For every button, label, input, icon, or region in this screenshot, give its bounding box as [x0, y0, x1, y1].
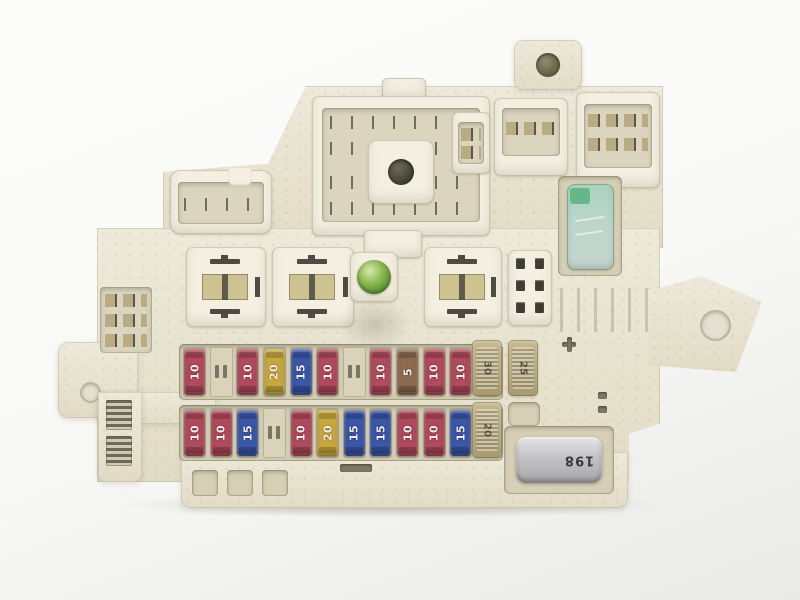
- relay-terminal-pair: [202, 274, 248, 300]
- fuse-slot: 15: [369, 408, 392, 458]
- upper-right-connector-a-cavity: [502, 108, 560, 156]
- relay-terminal-top: [447, 259, 477, 264]
- relay-terminal-bottom: [447, 309, 477, 314]
- fuse-slot: 10: [449, 347, 472, 397]
- bolt-boss: [368, 140, 434, 204]
- small-connector-cavity: [458, 122, 484, 164]
- mini-fuse: 5: [397, 349, 418, 395]
- photo-scene: 10 10 20 15 10 10 5 10 10: [0, 0, 800, 600]
- mini-fuse: 20: [264, 349, 285, 395]
- fuse-amp-label: 20: [268, 364, 281, 380]
- terminal-pin: [516, 258, 525, 269]
- fuse-slot: 20: [263, 347, 286, 397]
- cartridge-fuse: 20: [472, 402, 502, 458]
- green-bolt-boss: [350, 252, 398, 302]
- silver-relay: 198: [516, 437, 602, 483]
- green-relay-cap: [570, 188, 590, 204]
- fuse-amp-label: 10: [454, 364, 467, 380]
- connector-pins: [330, 116, 472, 129]
- fuse-slot: 10: [423, 347, 446, 397]
- fuse-slot: 5: [396, 347, 419, 397]
- fuse-slot: 20: [316, 408, 339, 458]
- terminal-pin: [535, 280, 544, 291]
- mounting-bracket-right: [648, 276, 762, 372]
- bottom-vent-slot: [340, 464, 372, 472]
- terminal-row: [105, 294, 147, 307]
- terminal-row: [506, 122, 556, 135]
- connector-notch: [228, 168, 252, 186]
- mini-fuse: 15: [344, 410, 365, 456]
- fuse-amp-label: 20: [321, 425, 334, 441]
- terminal-pin: [516, 302, 525, 313]
- relay-terminal-top: [210, 259, 240, 264]
- mini-fuse: 10: [317, 349, 338, 395]
- mini-fuse: 10: [424, 349, 445, 395]
- fuse-amp-label: 15: [348, 425, 361, 441]
- terminal-row: [105, 334, 147, 347]
- green-relay: [567, 184, 614, 270]
- fuse-slot: 10: [396, 408, 419, 458]
- fuse-amp-label: 10: [215, 425, 228, 441]
- fuse-slot-empty: [343, 347, 366, 397]
- fuse-amp-label: 10: [241, 364, 254, 380]
- mini-fuse: 10: [237, 349, 258, 395]
- fuse-amp-label: 10: [401, 425, 414, 441]
- fuse-amp-label: 5: [401, 368, 414, 376]
- mini-fuse: 10: [370, 349, 391, 395]
- fuse-slot: 10: [183, 408, 206, 458]
- green-bolt: [357, 260, 391, 294]
- relay-socket-3: [424, 247, 502, 327]
- fuse-slot: 10: [236, 347, 259, 397]
- vent-slot: [598, 406, 607, 413]
- fuse-amp-label: 10: [321, 364, 334, 380]
- fuse-slot-empty: [210, 347, 233, 397]
- cartridge-amp-label: 20: [482, 423, 493, 437]
- housing-stain: [338, 298, 412, 350]
- bracket-terminal-pins-upper: [106, 400, 132, 430]
- mini-fuse: 10: [211, 410, 232, 456]
- fuse-amp-label: 15: [374, 425, 387, 441]
- mounting-hole-top: [536, 53, 560, 77]
- terminal-row: [105, 314, 147, 327]
- cartridge-fuse: 30: [472, 340, 502, 396]
- pin-grid: [516, 258, 544, 318]
- fuse-slot: 10: [210, 408, 233, 458]
- fuse-slot: 15: [236, 408, 259, 458]
- bottom-slot: [262, 470, 288, 496]
- mounting-hole-right: [700, 310, 731, 341]
- fuse-slot: 15: [449, 408, 472, 458]
- mini-fuse: 20: [317, 410, 338, 456]
- connector-pins: [184, 198, 258, 211]
- fuse-slot-empty: [263, 408, 286, 458]
- mini-fuse: 15: [370, 410, 391, 456]
- terminal-row: [461, 146, 481, 159]
- relay-terminal-side: [343, 277, 348, 297]
- relay-terminal-side: [491, 277, 496, 297]
- upper-right-connector-a: [494, 98, 568, 176]
- small-connector: [452, 112, 490, 174]
- terminal-row: [461, 128, 481, 141]
- terminal-row: [588, 138, 648, 151]
- relay-socket-1: [186, 247, 266, 327]
- vent-slot: [598, 392, 607, 399]
- fuse-slot: 10: [316, 347, 339, 397]
- relay-terminal-top: [297, 259, 327, 264]
- green-relay-print: [575, 230, 603, 236]
- vent-slot: [567, 337, 572, 352]
- cartridge-fuse: 25: [508, 340, 538, 396]
- bracket-terminal-pins-lower: [106, 436, 132, 466]
- fuse-slot: 15: [290, 347, 313, 397]
- relay-terminal-bottom: [297, 309, 327, 314]
- mini-fuse: 10: [424, 410, 445, 456]
- cartridge-slot-empty: [508, 402, 540, 426]
- fuse-amp-label: 15: [295, 364, 308, 380]
- fuse-amp-label: 10: [295, 425, 308, 441]
- mini-fuse: 10: [184, 410, 205, 456]
- fuse-amp-label: 15: [241, 425, 254, 441]
- mini-fuse: 10: [291, 410, 312, 456]
- upper-right-connector-b-cavity: [584, 104, 652, 168]
- fuse-bank-upper: 10 10 20 15 10 10 5 10 10: [179, 344, 503, 400]
- terminal-row: [588, 114, 648, 127]
- mini-fuse: 10: [184, 349, 205, 395]
- silver-relay-socket: 198: [504, 426, 614, 494]
- fuse-slot: 10: [183, 347, 206, 397]
- terminal-pin: [535, 302, 544, 313]
- left-edge-terminal-block: [100, 287, 152, 353]
- relay-terminal-pair: [439, 274, 485, 300]
- fuse-amp-label: 10: [188, 364, 201, 380]
- terminal-pin: [516, 280, 525, 291]
- fuse-amp-label: 10: [188, 425, 201, 441]
- fuse-slot: 15: [343, 408, 366, 458]
- green-relay-print: [575, 216, 605, 222]
- upper-right-connector-b: [576, 92, 660, 188]
- mini-fuse: 15: [450, 410, 471, 456]
- upper-left-connector-cavity: [178, 182, 264, 224]
- mini-fuse: 15: [237, 410, 258, 456]
- fuse-slot: 10: [369, 347, 392, 397]
- relay-terminal-side: [255, 277, 260, 297]
- fuse-amp-label: 10: [428, 364, 441, 380]
- fuse-amp-label: 10: [374, 364, 387, 380]
- fuse-amp-label: 10: [428, 425, 441, 441]
- relay-terminal-bottom: [210, 309, 240, 314]
- bottom-slot: [192, 470, 218, 496]
- bottom-slot: [227, 470, 253, 496]
- mini-fuse: 10: [450, 349, 471, 395]
- housing-grooves: [560, 288, 656, 332]
- fuse-bank-lower: 10 10 15 10 20 15 15 10 10: [179, 405, 503, 461]
- pin-grid-connector: [508, 250, 552, 326]
- fuse-amp-label: 15: [454, 425, 467, 441]
- terminal-pin: [535, 258, 544, 269]
- fuse-slot: 10: [423, 408, 446, 458]
- upper-left-connector: [170, 170, 272, 234]
- bolt-hole: [388, 159, 414, 185]
- relay-terminal-pair: [289, 274, 335, 300]
- cartridge-amp-label: 25: [518, 361, 529, 375]
- fuse-slot: 10: [290, 408, 313, 458]
- mini-fuse: 15: [291, 349, 312, 395]
- silver-relay-label: 198: [564, 453, 594, 468]
- cartridge-amp-label: 30: [482, 361, 493, 375]
- mini-fuse: 10: [397, 410, 418, 456]
- mounting-tab-top: [514, 40, 582, 90]
